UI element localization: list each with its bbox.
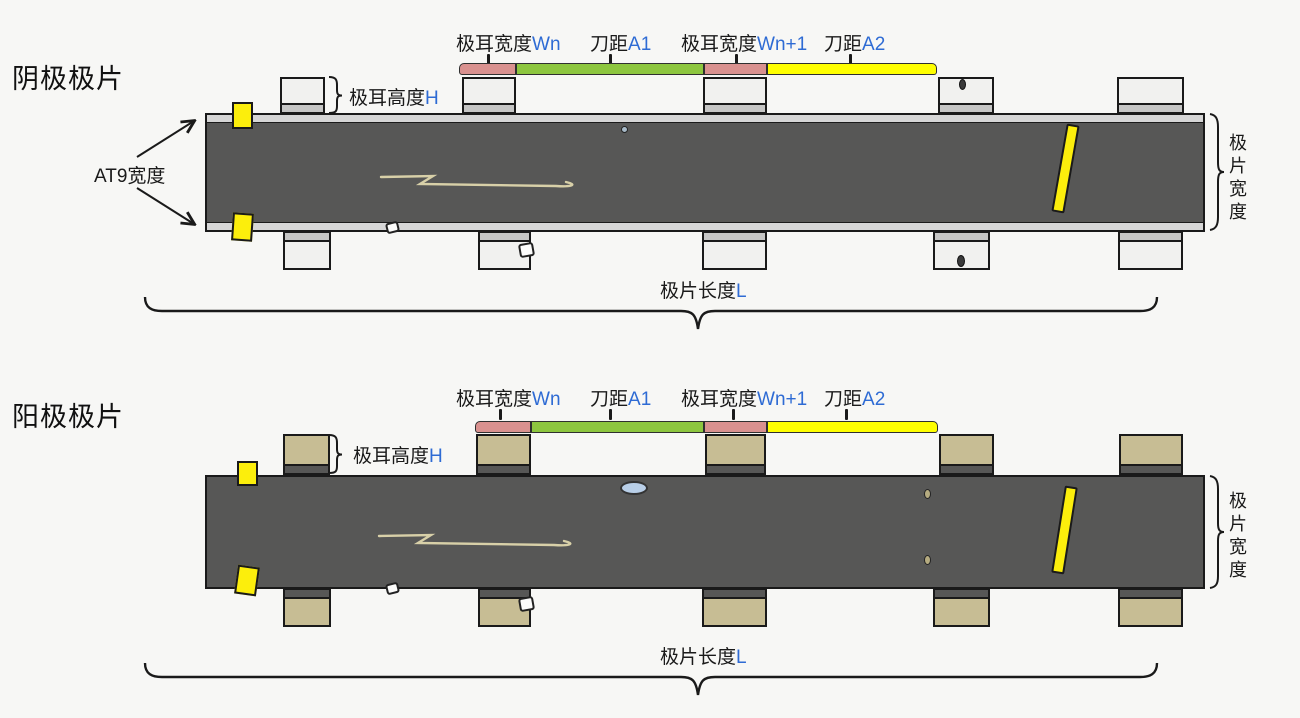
bubble-defect	[620, 481, 648, 495]
splice-tape-mark	[234, 565, 260, 597]
tab-defect-mark	[518, 242, 535, 258]
cathode-bottom-tab	[702, 231, 767, 270]
cathode-dim-tab-width-n: 极耳宽度Wn	[456, 29, 561, 56]
cathode-sheet-strip	[205, 113, 1205, 232]
tab-width-bar	[459, 63, 516, 75]
anode-dim-tab-width-n: 极耳宽度Wn	[456, 384, 561, 411]
anode-dim-knife-a2: 刀距A2	[824, 384, 885, 411]
cathode-title: 阴极极片	[12, 57, 124, 96]
edge-defect-mark	[385, 221, 400, 235]
anode-top-tab	[1119, 434, 1183, 475]
tick-mark	[499, 409, 502, 420]
knife-distance-a2-bar	[767, 421, 938, 433]
anode-sheet-width-brace	[1210, 476, 1224, 588]
anode-bottom-tab	[1118, 588, 1183, 627]
cathode-top-tab	[462, 77, 516, 114]
cathode-tab-height-bracket	[329, 77, 342, 113]
splice-tape-mark	[231, 212, 254, 241]
tick-mark	[845, 409, 848, 420]
anode-top-tab	[476, 434, 531, 475]
splice-tape-mark	[237, 461, 258, 486]
anode-sheet-length-label: 极片长度L	[660, 642, 747, 669]
tab-defect-mark	[959, 79, 966, 90]
tick-mark	[732, 409, 735, 420]
tab-defect-mark	[518, 596, 535, 612]
cathode-sheet-length-brace	[145, 297, 1157, 329]
cathode-bottom-tab	[1118, 231, 1183, 270]
at9-arrow-bottom	[137, 188, 194, 224]
tab-width-bar	[704, 421, 767, 433]
anode-top-tab	[283, 434, 330, 475]
cathode-tab-height-label: 极耳高度H	[349, 83, 439, 110]
anode-dim-tab-width-n1: 极耳宽度Wn+1	[681, 384, 807, 411]
anode-bottom-tab	[702, 588, 767, 627]
cathode-sheet-width-brace	[1210, 114, 1224, 230]
tab-width-bar	[704, 63, 767, 75]
cathode-top-tab	[703, 77, 767, 114]
tab-defect-mark	[957, 255, 965, 267]
annotation-overlay	[0, 0, 1300, 718]
cathode-dim-knife-a2: 刀距A2	[824, 29, 885, 56]
splice-tape-mark	[232, 102, 253, 129]
at9-arrow-top	[137, 121, 194, 157]
anode-bottom-tab	[933, 588, 990, 627]
cathode-dim-tab-width-n1: 极耳宽度Wn+1	[681, 29, 807, 56]
electrode-sheet-diagram: 阴极极片 极耳宽度Wn 刀距A1 极耳宽度Wn+1 刀距A2 极耳高度H AT9…	[0, 0, 1300, 718]
cathode-top-tab	[280, 77, 325, 114]
knife-distance-a1-bar	[516, 63, 704, 75]
coating-edge-band	[207, 115, 1203, 123]
coating-edge-band	[207, 222, 1203, 230]
cathode-bottom-tab	[283, 231, 331, 270]
anode-bottom-tab	[283, 588, 331, 627]
anode-top-tab	[705, 434, 766, 475]
particle-defect	[924, 489, 931, 499]
knife-distance-a2-bar	[767, 63, 937, 75]
particle-defect	[924, 555, 931, 565]
anode-sheet-width-label: 极片宽度	[1224, 491, 1250, 595]
anode-sheet-length-brace	[145, 663, 1157, 695]
pinhole-defect	[621, 126, 628, 133]
cathode-dim-knife-a1: 刀距A1	[590, 29, 651, 56]
anode-title: 阳极极片	[12, 395, 124, 434]
tick-mark	[609, 409, 612, 420]
cathode-top-tab	[1117, 77, 1184, 114]
cathode-top-tab	[938, 77, 994, 114]
anode-top-tab	[939, 434, 994, 475]
knife-distance-a1-bar	[531, 421, 704, 433]
anode-tab-height-label: 极耳高度H	[353, 441, 443, 468]
at9-width-label: AT9宽度	[94, 161, 165, 188]
cathode-sheet-width-label: 极片宽度	[1224, 133, 1250, 237]
cathode-sheet-length-label: 极片长度L	[660, 276, 747, 303]
edge-defect-mark	[385, 582, 400, 596]
anode-tab-height-bracket	[329, 435, 342, 473]
anode-dim-knife-a1: 刀距A1	[590, 384, 651, 411]
tab-width-bar	[475, 421, 531, 433]
